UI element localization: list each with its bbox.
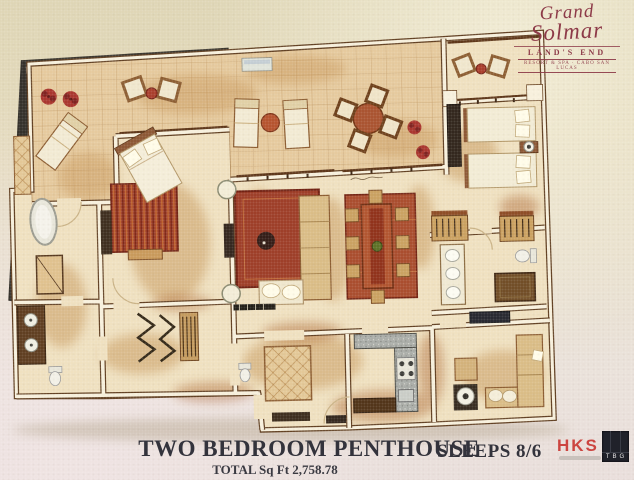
tbg-logo: TBG bbox=[602, 431, 629, 462]
bed-icon bbox=[464, 153, 537, 189]
toilet-icon bbox=[515, 249, 536, 263]
entry-threshold bbox=[272, 412, 310, 422]
wall-console bbox=[470, 311, 510, 323]
sink-icon bbox=[398, 389, 413, 401]
centerpiece-plant-icon bbox=[372, 241, 382, 251]
patio-table-icon bbox=[146, 88, 157, 99]
sink-icon bbox=[445, 249, 459, 261]
bed-icon bbox=[463, 107, 536, 143]
balcony-pillar-right bbox=[527, 84, 543, 100]
runner-rug bbox=[14, 136, 31, 194]
brand-name-line2: Solmar bbox=[507, 17, 626, 46]
sink-icon bbox=[446, 267, 460, 279]
brand-logo: Grand Solmar LAND'S END RESORT & SPA · C… bbox=[508, 3, 626, 73]
planter bbox=[242, 58, 272, 72]
plan-total-sqft: TOTAL Sq Ft 2,758.78 bbox=[0, 462, 592, 478]
tbg-logo-bars bbox=[602, 431, 629, 452]
side-table-icon bbox=[453, 384, 478, 411]
floor-plan-board bbox=[2, 32, 554, 435]
chaise-lounge-icon bbox=[283, 99, 310, 148]
closet-rod bbox=[499, 211, 534, 242]
tbg-logo-letters: TBG bbox=[602, 452, 629, 462]
planter-water bbox=[244, 60, 270, 65]
brand-subtitle: LAND'S END bbox=[508, 49, 626, 57]
entry-rug bbox=[264, 346, 311, 401]
bench-icon bbox=[128, 249, 162, 260]
entry-mat bbox=[326, 415, 346, 423]
tv-dresser-icon bbox=[447, 104, 461, 166]
swivel-chair-icon bbox=[218, 180, 236, 198]
toilet-icon bbox=[239, 363, 251, 382]
armchair-icon bbox=[455, 358, 477, 380]
floor-plan-photo: Grand Solmar LAND'S END RESORT & SPA · C… bbox=[0, 0, 634, 480]
hks-logo: HKS bbox=[557, 436, 599, 456]
hks-tagline-smudge bbox=[559, 456, 601, 460]
swivel-chair-icon bbox=[222, 284, 240, 302]
counter-granite bbox=[354, 333, 416, 348]
dining-room bbox=[345, 189, 418, 304]
side-table-icon bbox=[261, 113, 279, 131]
sink-icon bbox=[446, 286, 460, 298]
island-dark bbox=[354, 398, 396, 413]
tv-dresser-icon bbox=[100, 210, 112, 254]
closet-rod bbox=[431, 210, 468, 241]
logo-rule bbox=[514, 46, 620, 47]
fireplace-tv-icon bbox=[224, 224, 235, 258]
plan-sleeps: SLEEPS 8/6 bbox=[437, 441, 542, 463]
patio-table-icon bbox=[476, 64, 486, 74]
chaise-lounge-icon bbox=[234, 99, 259, 148]
stove-icon bbox=[397, 357, 415, 379]
brand-tagline: RESORT & SPA · CABO SAN LUCAS bbox=[518, 59, 616, 73]
